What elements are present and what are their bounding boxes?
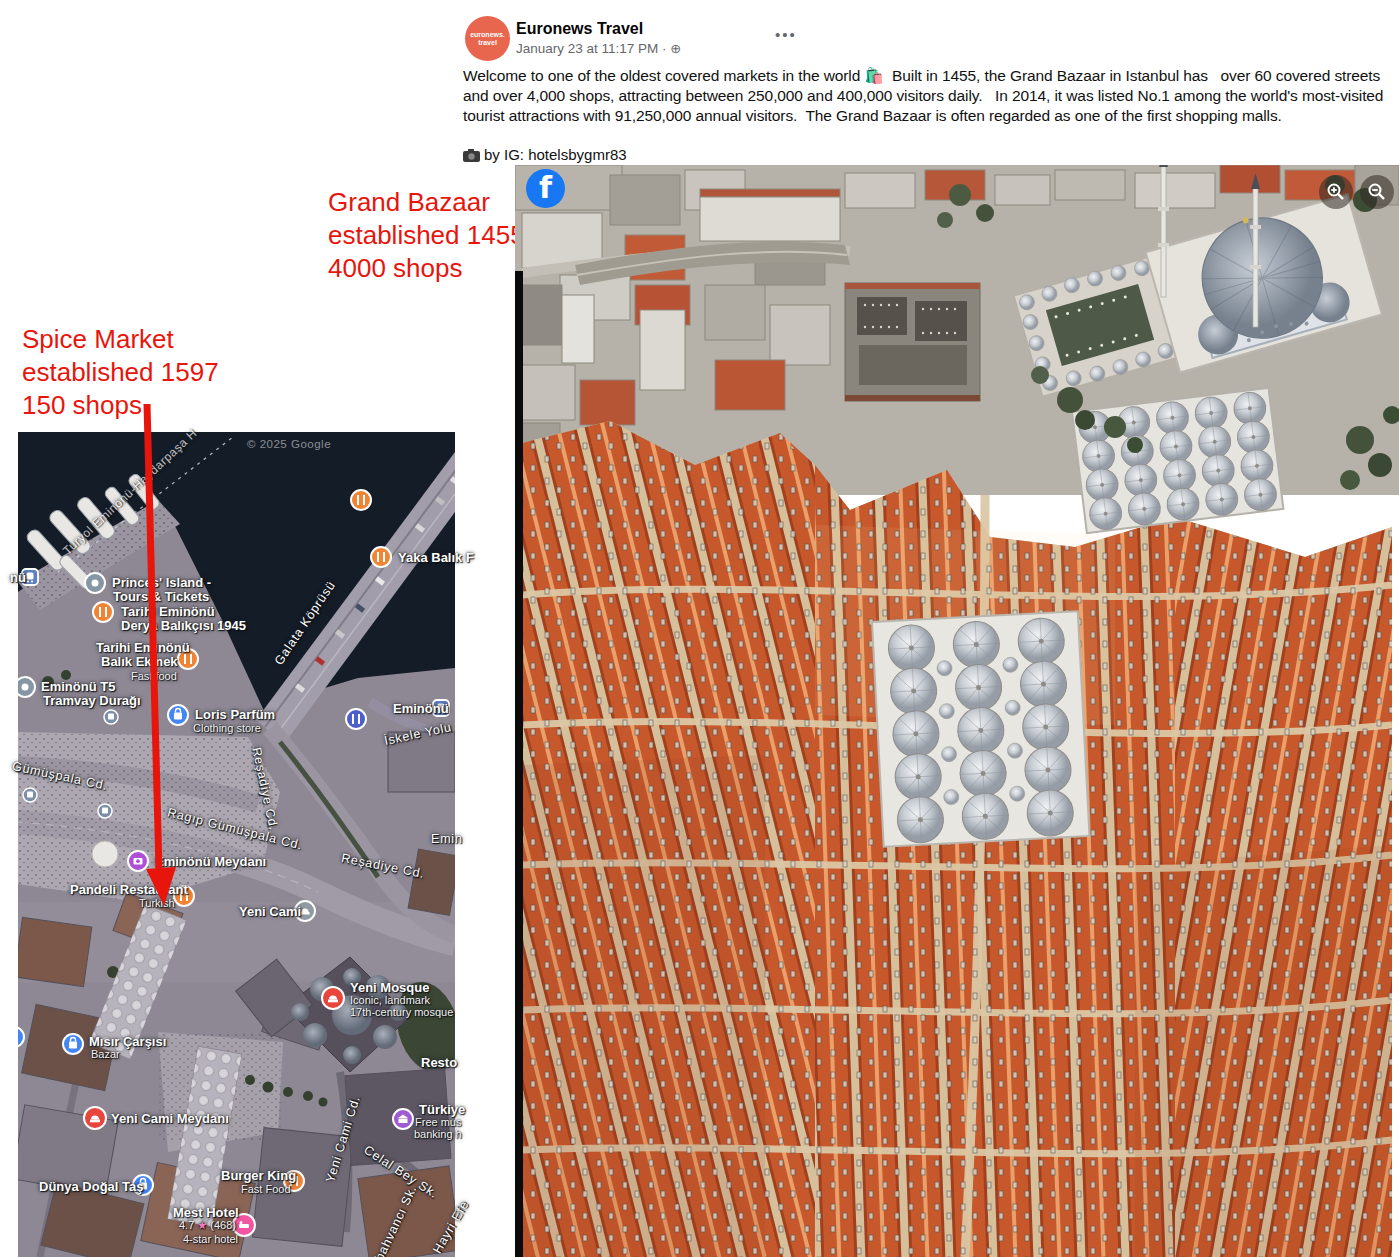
poi-label[interactable]: Derya Balıkçısı 1945 <box>121 618 246 633</box>
zoom-in-icon <box>1325 181 1347 203</box>
poi-sublabel[interactable]: Turkish <box>139 897 175 909</box>
tours-poi-icon[interactable] <box>85 573 105 593</box>
bus-stop-icon[interactable] <box>104 710 118 724</box>
annotation-grand-bazaar: Grand Bazaar established 1455 4000 shops <box>328 186 525 285</box>
avatar[interactable]: euronews. travel <box>465 16 510 61</box>
bus-stop-icon[interactable] <box>23 788 37 802</box>
restaurant-icon[interactable] <box>351 490 371 510</box>
annotation-spice-market: Spice Market established 1597 150 shops <box>22 323 219 422</box>
bus-stop-icon[interactable] <box>98 804 112 818</box>
poi-label[interactable]: Pandeli Restaurant <box>70 882 188 897</box>
poi-label[interactable]: Dünya Doğal Taş <box>39 1179 144 1194</box>
shopping-icon[interactable] <box>168 705 188 725</box>
zoom-out-button[interactable] <box>1360 175 1394 209</box>
poi-sublabel[interactable]: Fast Food <box>241 1183 291 1195</box>
poi-rating: 4.7 ★ (468) <box>179 1219 236 1232</box>
poi-label[interactable]: Tramvay Durağı <box>43 693 141 708</box>
post-body: Welcome to one of the oldest covered mar… <box>463 66 1399 126</box>
sandal-bedesten <box>1072 388 1283 533</box>
screenshot-root: euronews. travel Euronews Travel January… <box>0 0 1399 1257</box>
poi-label[interactable]: Princes' Island - <box>112 575 211 590</box>
valide-han <box>845 283 980 401</box>
aerial-photo-image[interactable] <box>515 165 1399 1257</box>
post-timestamp: January 23 at 11:17 PM · ⊕ <box>516 41 681 56</box>
aerial-photo[interactable] <box>515 165 1399 1257</box>
shopping-icon[interactable] <box>63 1034 83 1054</box>
poi-sublabel[interactable]: Free mus <box>415 1116 461 1128</box>
facebook-post: euronews. travel Euronews Travel January… <box>463 8 1399 163</box>
poi-label[interactable]: Tarihi Eminönü <box>96 640 190 655</box>
post-options-icon[interactable]: ••• <box>775 26 797 43</box>
facebook-logo: f <box>526 169 565 208</box>
star-icon: ★ <box>197 1219 207 1231</box>
avatar-text1: euronews. <box>470 31 505 39</box>
poi-label[interactable]: Yeni Mosque <box>350 980 429 995</box>
poi-label[interactable]: Burger King <box>221 1168 296 1183</box>
restaurant-icon[interactable] <box>371 547 391 567</box>
poi-sublabel[interactable]: Fast food <box>131 670 177 682</box>
poi-label[interactable]: Mest Hotel <box>173 1205 239 1220</box>
poi-label[interactable]: Tours & Tickets <box>113 589 209 604</box>
restaurant-icon[interactable] <box>93 602 113 622</box>
mosque-landmark-icon[interactable] <box>84 1107 106 1129</box>
poi-label[interactable]: nü <box>10 570 26 585</box>
poi-sublabel[interactable]: Iconic, landmark <box>350 994 430 1006</box>
satellite-map[interactable] <box>18 432 455 1257</box>
poi-label[interactable]: Yaka Balık F <box>398 550 474 565</box>
poi-label[interactable]: Loris Parfüm <box>195 707 275 722</box>
mosque-landmark-icon[interactable] <box>322 987 344 1009</box>
poi-sublabel[interactable]: Clothing store <box>193 722 261 734</box>
cevahir-bedesten <box>872 611 1089 846</box>
poi-label[interactable]: Resto <box>421 1055 457 1070</box>
poi-label[interactable]: Mısır Çarşısı <box>89 1034 166 1049</box>
zoom-in-button[interactable] <box>1319 175 1353 209</box>
poi-label[interactable]: Eminönü Meydanı <box>155 854 266 869</box>
poi-label[interactable]: Eminönü T5 <box>41 679 115 694</box>
poi-label[interactable]: Türkiye <box>419 1102 465 1117</box>
square-dome-tent <box>92 841 118 867</box>
poi-label[interactable]: Eminönü <box>393 701 449 716</box>
poi-label[interactable]: Tarihi Eminönü <box>121 604 215 619</box>
photo-edge <box>515 271 523 1257</box>
poi-sublabel[interactable]: 4-star hotel <box>183 1233 238 1245</box>
zoom-out-icon <box>1366 181 1388 203</box>
post-credit: by IG: hotelsbygmr83 <box>463 146 627 165</box>
poi-sublabel[interactable]: banking h <box>414 1128 462 1140</box>
museum-icon[interactable] <box>393 1109 413 1129</box>
poi-sublabel[interactable]: Bazar <box>91 1048 120 1060</box>
camera-icon <box>463 148 480 165</box>
restaurant-icon[interactable] <box>346 709 366 729</box>
globe-icon: ⊕ <box>670 41 681 56</box>
avatar-text2: travel <box>478 39 497 47</box>
tram-stop-icon[interactable] <box>18 677 35 697</box>
poi-label[interactable]: Balık Ekmek <box>101 654 178 669</box>
poi-sublabel[interactable]: 17th-century mosque <box>350 1006 453 1018</box>
attraction-icon[interactable] <box>128 851 148 871</box>
post-author[interactable]: Euronews Travel <box>516 20 643 38</box>
street-label: Emin <box>431 832 463 846</box>
poi-label[interactable]: Yeni Cami <box>239 904 301 919</box>
satellite-map-image[interactable] <box>18 432 455 1257</box>
poi-label[interactable]: Yeni Cami Meydanı <box>111 1111 229 1126</box>
